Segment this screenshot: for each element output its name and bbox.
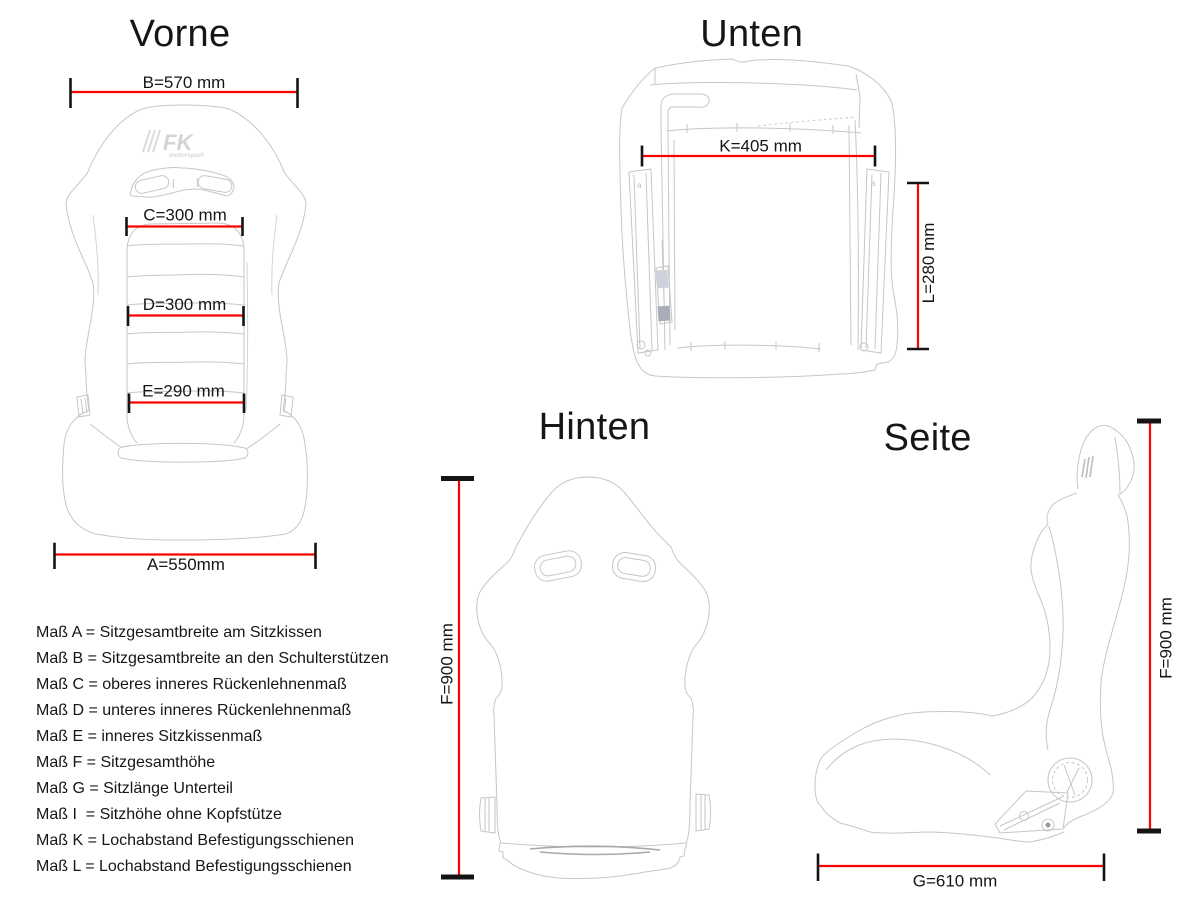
svg-text:F=900 mm: F=900 mm xyxy=(1157,597,1176,679)
svg-text:Maß D = unteres inneres Rücken: Maß D = unteres inneres Rückenlehnenmaß xyxy=(36,702,351,719)
svg-text:Unten: Unten xyxy=(700,13,803,55)
svg-text:A=550mm: A=550mm xyxy=(147,555,225,574)
svg-text:Maß C = oberes inneres Rückenl: Maß C = oberes inneres Rückenlehnenmaß xyxy=(36,676,347,693)
svg-text:C=300 mm: C=300 mm xyxy=(143,206,227,225)
svg-text:motorsport: motorsport xyxy=(169,152,205,159)
svg-text:Maß A = Sitzgesamtbreite am Si: Maß A = Sitzgesamtbreite am Sitzkissen xyxy=(36,624,322,641)
svg-text:E=290 mm: E=290 mm xyxy=(142,382,225,401)
svg-text:F=900 mm: F=900 mm xyxy=(438,623,457,705)
svg-text:Seite: Seite xyxy=(884,417,972,459)
svg-text:Maß F = Sitzgesamthöhe: Maß F = Sitzgesamthöhe xyxy=(36,754,215,771)
svg-text:Vorne: Vorne xyxy=(130,13,231,55)
svg-text:D=300 mm: D=300 mm xyxy=(143,295,227,314)
svg-text:a: a xyxy=(637,181,642,190)
svg-text:G=610 mm: G=610 mm xyxy=(913,872,998,891)
svg-text:B=570 mm: B=570 mm xyxy=(143,73,226,92)
svg-text:Hinten: Hinten xyxy=(539,406,651,448)
svg-text:Maß G = Sitzlänge Unterteil: Maß G = Sitzlänge Unterteil xyxy=(36,780,233,797)
svg-text:L=280 mm: L=280 mm xyxy=(919,223,938,304)
svg-text:K=405 mm: K=405 mm xyxy=(719,137,802,156)
svg-text:a: a xyxy=(871,179,876,188)
svg-text:Maß B = Sitzgesamtbreite an de: Maß B = Sitzgesamtbreite an den Schulter… xyxy=(36,650,389,667)
svg-text:Maß I = Sitzhöhe ohne Kopfstü: Maß I = Sitzhöhe ohne Kopfstütze xyxy=(36,806,282,823)
svg-text:Maß K = Lochabstand Befestigun: Maß K = Lochabstand Befestigungsschienen xyxy=(36,832,354,849)
svg-text:Maß E = inneres Sitzkissenmaß: Maß E = inneres Sitzkissenmaß xyxy=(36,728,263,745)
svg-text:Maß L = Lochabstand Befestigun: Maß L = Lochabstand Befestigungsschienen xyxy=(36,858,352,875)
